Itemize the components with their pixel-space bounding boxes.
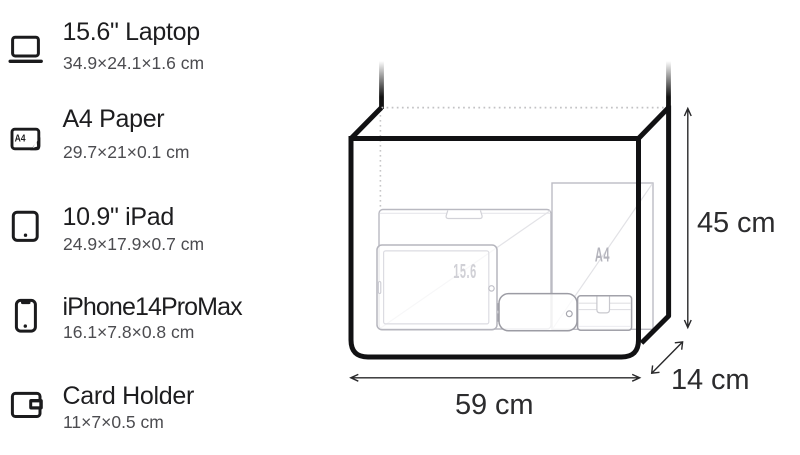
svg-text:15.6: 15.6 [453,260,477,282]
svg-text:A4: A4 [15,133,27,145]
svg-text:A4: A4 [595,244,610,266]
